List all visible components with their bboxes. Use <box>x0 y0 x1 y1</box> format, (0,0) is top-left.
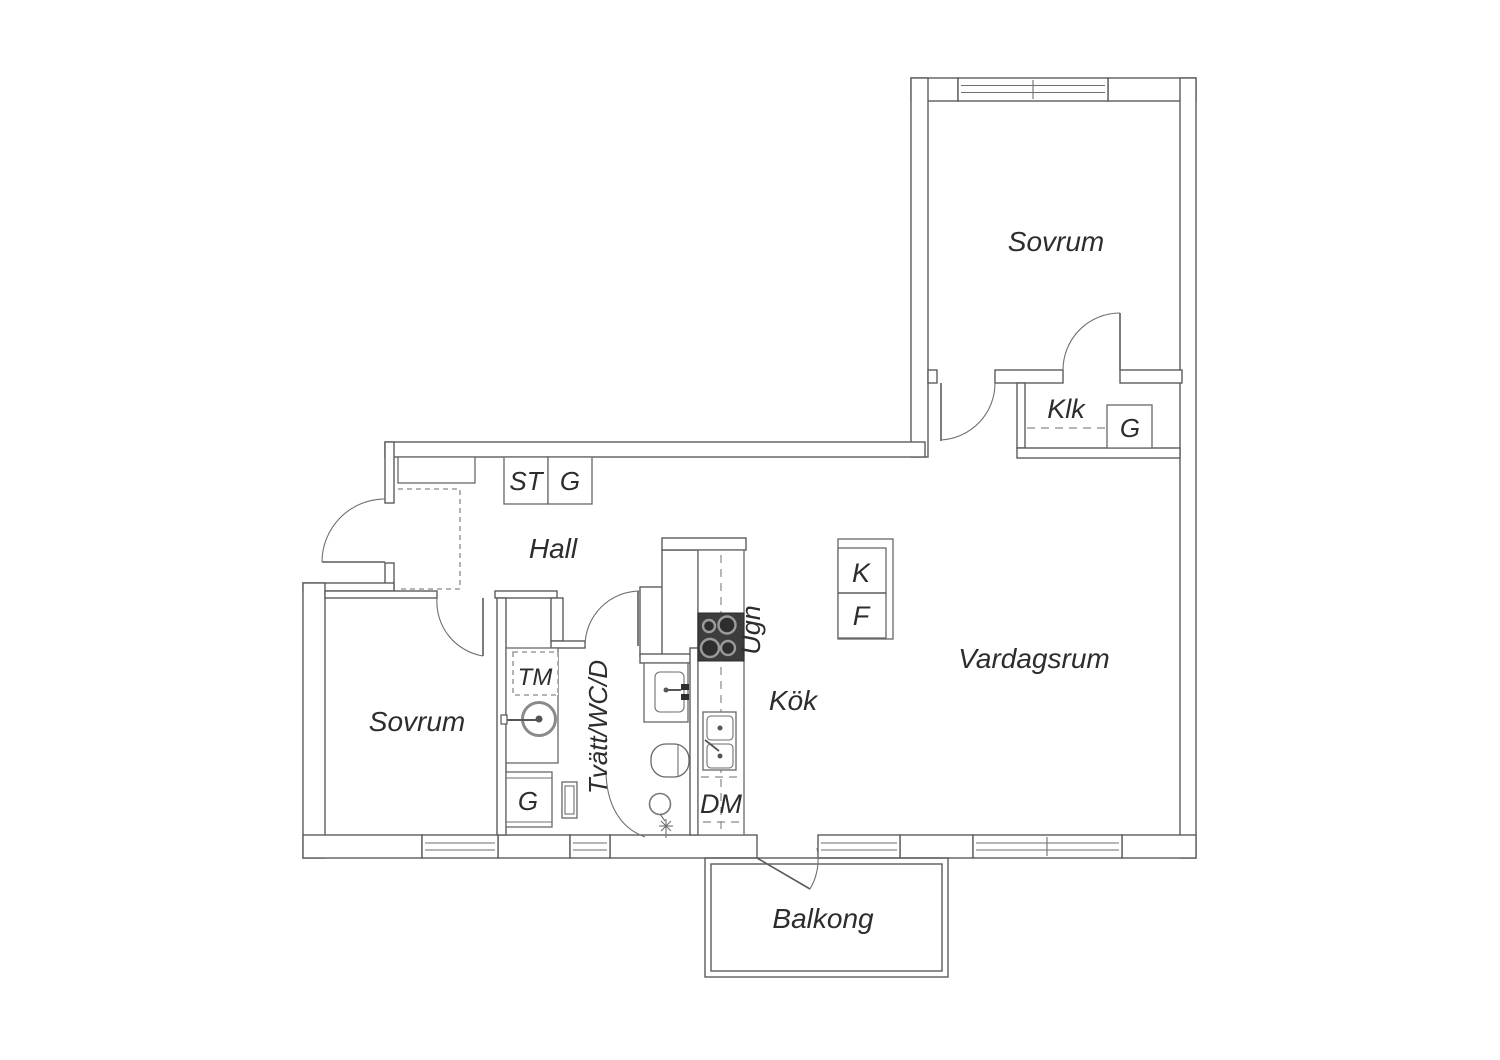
wall <box>303 835 422 858</box>
wall <box>303 583 325 858</box>
room-label-walk-in-closet: Klk <box>1047 394 1086 424</box>
door-bathroom <box>585 591 640 646</box>
wall <box>1017 383 1025 448</box>
room-label-bedroom-left: Sovrum <box>369 706 465 737</box>
fixture-label-wardrobe-hall: G <box>560 466 580 496</box>
room-label-living-room: Vardagsrum <box>958 643 1109 674</box>
wall <box>928 370 937 383</box>
window-kitchen <box>818 835 900 858</box>
room-label-hall: Hall <box>529 533 578 564</box>
wall <box>690 648 698 835</box>
window-bathroom <box>570 835 610 858</box>
hall-wardrobe-dashed <box>398 489 460 589</box>
door-bedroom-left <box>437 598 483 656</box>
wall <box>900 835 973 858</box>
wall <box>495 591 557 598</box>
wall <box>385 442 394 503</box>
fixture-label-freezer: F <box>853 601 871 631</box>
room-label-kitchen: Kök <box>769 685 819 716</box>
window-bedroom-right <box>958 78 1108 101</box>
wall <box>325 591 437 598</box>
wall <box>1120 370 1182 383</box>
wall <box>995 370 1063 383</box>
wall <box>1017 448 1180 458</box>
wall <box>640 654 698 663</box>
labels: Sovrum Sovrum Hall Klk Vardagsrum Kök Ba… <box>369 226 1140 934</box>
storage <box>398 405 1152 639</box>
fixture-label-fridge: K <box>852 558 871 588</box>
door-bedroom-right <box>941 383 995 441</box>
kitchen-sink-icon <box>703 712 736 770</box>
wall <box>551 598 563 641</box>
wall <box>662 538 746 550</box>
room-label-bathroom: Tvätt/WC/D <box>583 660 613 794</box>
wall <box>610 835 757 858</box>
wall <box>1180 78 1196 858</box>
fixture-label-wardrobe-bathroom: G <box>518 786 538 816</box>
fixture-label-wardrobe-walk-in: G <box>1120 413 1140 443</box>
hall-closet-box <box>398 457 475 483</box>
door-balcony <box>757 848 818 889</box>
room-label-bedroom-right: Sovrum <box>1008 226 1104 257</box>
front-door <box>322 499 385 562</box>
wall <box>385 442 925 457</box>
floorplan-canvas: Sovrum Sovrum Hall Klk Vardagsrum Kök Ba… <box>0 0 1500 1060</box>
shower-icon <box>606 770 673 838</box>
window-bedroom-left <box>422 835 498 858</box>
window-living-room <box>973 835 1122 858</box>
washbasin-icon <box>644 663 689 722</box>
radiator-icon <box>562 782 577 818</box>
wall <box>551 641 585 648</box>
wall <box>911 78 928 457</box>
wall <box>1122 835 1196 858</box>
fixture-label-washing-machine: TM <box>518 664 553 691</box>
wall <box>498 835 570 858</box>
door-walk-in-closet <box>1063 313 1120 370</box>
floorplan-page: Sovrum Sovrum Hall Klk Vardagsrum Kök Ba… <box>0 0 1500 1060</box>
fixture-label-cleaning-closet: ST <box>509 466 544 496</box>
fixture-label-dishwasher: DM <box>700 789 742 819</box>
fixture-label-oven: Ugn <box>736 605 766 655</box>
wall <box>662 550 698 656</box>
toilet-icon <box>651 744 689 777</box>
room-label-balcony: Balkong <box>772 903 874 934</box>
